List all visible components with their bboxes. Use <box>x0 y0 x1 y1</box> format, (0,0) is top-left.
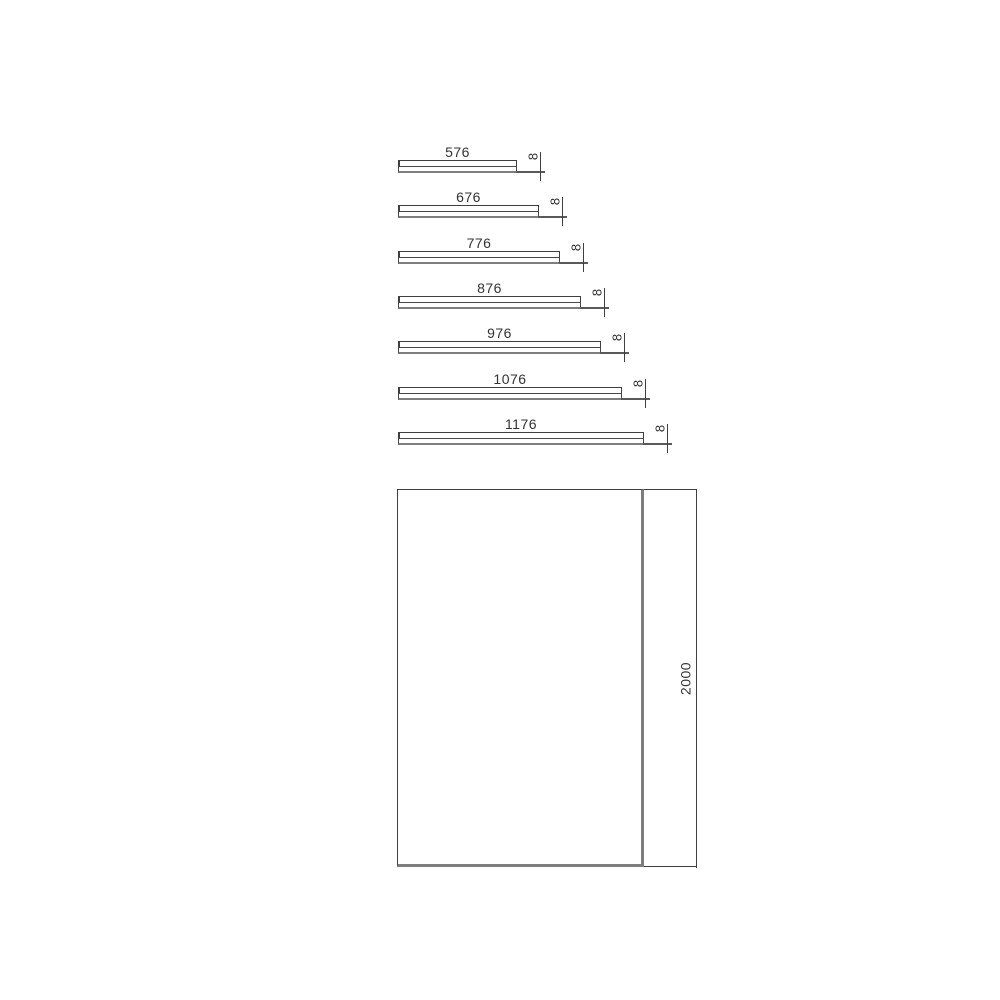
width-dim-label: 1176 <box>398 416 644 432</box>
thickness-dim-label: 8 <box>548 194 563 210</box>
panel-section-676: 676 8 <box>398 211 539 218</box>
panel-bar <box>398 166 517 173</box>
panel-section-976: 976 8 <box>398 347 601 354</box>
thickness-dim-label: 8 <box>610 330 625 346</box>
thickness-dim-label: 8 <box>590 285 605 301</box>
width-dim-line <box>398 296 581 297</box>
panel-section-576: 576 8 <box>398 166 517 173</box>
width-dim-label: 1076 <box>398 371 622 387</box>
width-dim-label: 576 <box>398 144 517 160</box>
panel-bar <box>398 257 560 264</box>
thickness-dim-label: 8 <box>569 240 584 256</box>
height-ext-line-bottom <box>644 866 697 867</box>
width-dim-line <box>398 205 539 206</box>
width-dim-line <box>398 341 601 342</box>
panel-bar <box>398 302 581 309</box>
panel-bar <box>398 393 622 400</box>
panel-section-876: 876 8 <box>398 302 581 309</box>
panel-section-776: 776 8 <box>398 257 560 264</box>
panel-bar <box>398 438 644 445</box>
width-dim-line <box>398 160 517 161</box>
thickness-dim-label: 8 <box>653 421 668 437</box>
width-dim-label: 776 <box>398 235 560 251</box>
panel-section-1076: 1076 8 <box>398 393 622 400</box>
height-dim-line <box>696 489 697 868</box>
panel-bar <box>398 211 539 218</box>
thickness-dim-label: 8 <box>631 376 646 392</box>
height-dim-label: 2000 <box>679 657 694 701</box>
width-dim-label: 976 <box>398 325 601 341</box>
front-panel-outline <box>397 489 644 867</box>
width-dim-label: 876 <box>398 280 581 296</box>
width-dim-line <box>398 387 622 388</box>
thickness-dim-label: 8 <box>526 149 541 165</box>
width-dim-line <box>398 432 644 433</box>
panel-dimension-diagram: 576 8 676 8 776 8 876 8 976 8 <box>0 0 1000 1000</box>
width-dim-label: 676 <box>398 189 539 205</box>
panel-section-1176: 1176 8 <box>398 438 644 445</box>
height-ext-line-top <box>644 489 697 490</box>
panel-bar <box>398 347 601 354</box>
width-dim-line <box>398 251 560 252</box>
